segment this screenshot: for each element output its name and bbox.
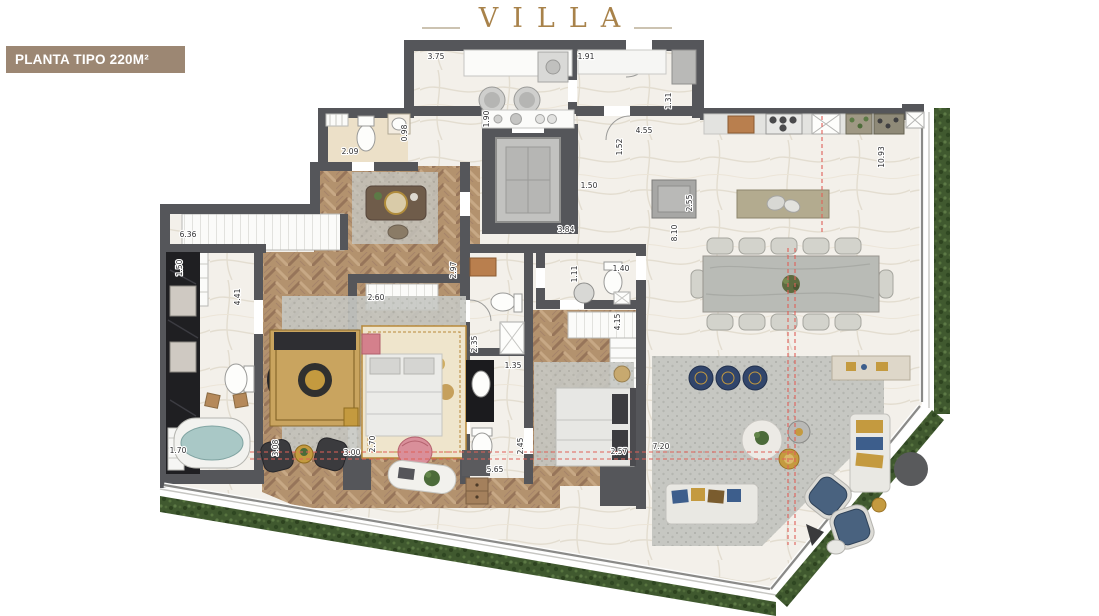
dimension-label: 1.91 (578, 52, 595, 61)
round-mirror (385, 192, 407, 214)
floor-plan-svg: 3.751.910.982.091.901.314.551.521.503.84… (0, 0, 1099, 616)
dimension-label: 1.11 (570, 265, 579, 282)
dimension-label: 2.45 (516, 437, 525, 454)
dimension-label: 7.20 (653, 442, 670, 451)
bed-pillows (274, 332, 356, 350)
elevator (482, 124, 578, 234)
dimension-label: 4.41 (233, 288, 242, 305)
dimension-label: 1.90 (482, 110, 491, 127)
pink-ottoman (362, 334, 380, 354)
oval-sink (472, 371, 490, 397)
dimension-label: 2.35 (470, 335, 479, 352)
dimension-label: 3.84 (558, 225, 575, 234)
dimension-label: 3.08 (271, 439, 280, 456)
dimension-label: 8.10 (670, 224, 679, 241)
poufs (689, 366, 767, 390)
toilet (604, 270, 622, 294)
dimension-label: 2.09 (342, 147, 359, 156)
dimension-label: 3.00 (344, 448, 361, 457)
dimension-label: 4.15 (613, 313, 622, 330)
terrace-column (894, 452, 928, 486)
dimension-label: 0.98 (400, 124, 409, 141)
dimension-label: 1.52 (615, 138, 624, 155)
dimension-label: 1.35 (505, 361, 522, 370)
office (352, 172, 438, 244)
sideboard (832, 356, 910, 380)
dimension-label: 10.93 (877, 146, 886, 168)
dimension-label: 3.75 (428, 52, 445, 61)
dimension-label: 1.50 (581, 181, 598, 190)
bedside-table (614, 366, 630, 382)
toilet (225, 364, 247, 394)
dimension-label: 2.55 (685, 194, 694, 211)
dimension-label: 1.31 (664, 92, 673, 109)
dimension-label: 2.97 (449, 261, 458, 278)
dimension-label: 2.57 (611, 447, 628, 456)
copper-sink (470, 258, 496, 276)
stone-sink (170, 342, 196, 372)
dimension-label: 1.70 (170, 446, 187, 455)
table-centerpiece (782, 275, 800, 293)
dimension-label: 6.36 (180, 230, 197, 239)
dimension-label: 5.65 (487, 465, 504, 474)
hedge-right (934, 108, 950, 414)
dimension-label: 4.55 (636, 126, 653, 135)
nightstand (344, 408, 358, 426)
entry-cabinet (672, 50, 696, 84)
dimension-label: 2.70 (368, 435, 377, 452)
stone-sink (170, 286, 196, 316)
dimension-label: 1.50 (175, 259, 184, 276)
floor-plan-page: VILLA PLANTA TIPO 220M² (0, 0, 1099, 616)
dimension-label: 1.40 (613, 264, 630, 273)
living-area (652, 356, 910, 554)
kitchen-sink (728, 116, 754, 133)
round-sink (574, 283, 594, 303)
bedroom3-closet-a (568, 312, 638, 338)
dimension-label: 2.60 (368, 293, 385, 302)
